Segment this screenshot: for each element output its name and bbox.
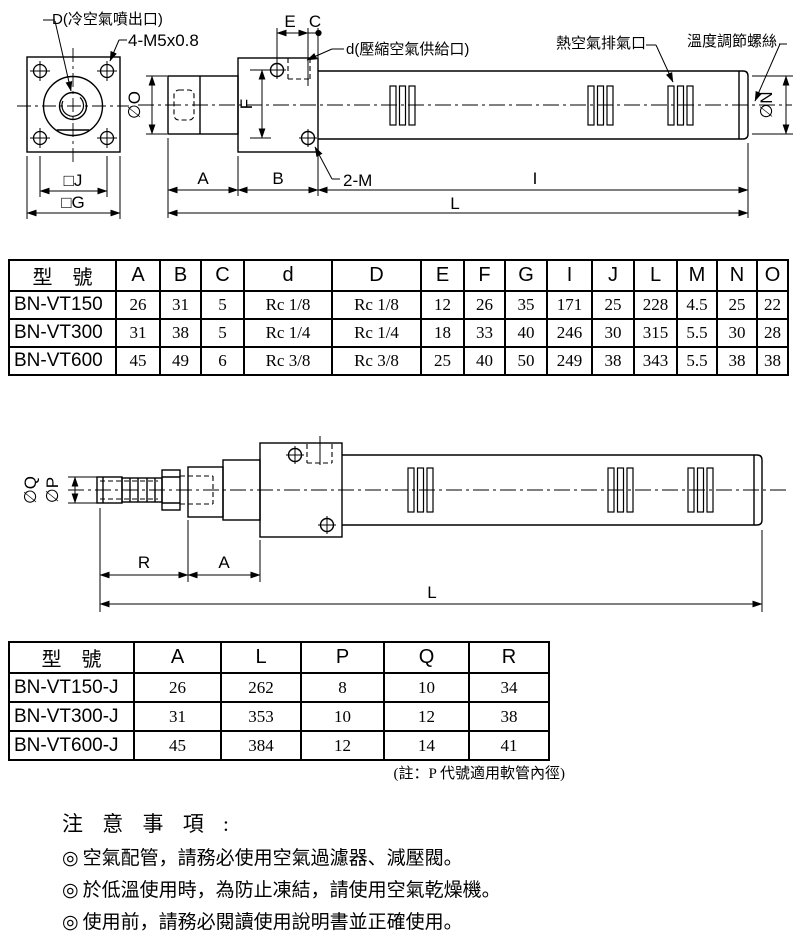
temp-screw-label: 溫度調節螺絲 (687, 32, 777, 50)
col-a: A (134, 642, 221, 673)
table-cell: 31 (134, 702, 221, 731)
table-cell: Rc 1/8 (244, 291, 332, 319)
table-cell: 8 (301, 673, 384, 702)
thread-2m-label: 2-M (343, 171, 372, 190)
dim-a-label: A (197, 169, 209, 188)
table-cell: 246 (547, 319, 592, 347)
table-row: BN-VT300 31 38 5 Rc 1/4 Rc 1/4 18 33 40 … (9, 319, 788, 347)
col-model: 型 號 (9, 642, 134, 673)
note-item: ◎使用前，請務必閱讀使用說明書並正確使用。 (62, 907, 762, 934)
table-cell: 18 (421, 319, 464, 347)
table-cell: Rc 1/8 (332, 291, 421, 319)
table-cell: 38 (160, 319, 201, 347)
table-cell: 262 (221, 673, 301, 702)
model-cell: BN-VT300-J (9, 702, 134, 731)
table-row: BN-VT600 45 49 6 Rc 3/8 Rc 3/8 25 40 50 … (9, 347, 788, 375)
table-cell: 38 (469, 702, 549, 731)
dim-e-label: E (284, 12, 295, 31)
table-cell: 5.5 (677, 347, 717, 375)
cold-air-outlet-label: D(冷空氣噴出口) (52, 11, 163, 28)
col-a: A (116, 260, 160, 291)
note-text: 於低溫使用時，為防止凍結，請使用空氣乾燥機。 (83, 880, 501, 901)
table-cell: 5.5 (677, 319, 717, 347)
dim-c-label: C (309, 12, 321, 31)
drawing-flanged-vortex-tube: D(冷空氣噴出口) 4-M5x0.8 E C d(壓縮空氣供給口) 熱空氣排氣口… (0, 0, 800, 252)
table-cell: 28 (757, 319, 788, 347)
table-cell: 30 (592, 319, 634, 347)
col-b: B (160, 260, 201, 291)
table-row: BN-VT150-J 26 262 8 10 34 (9, 673, 549, 702)
col-e: E (421, 260, 464, 291)
table-cell: 25 (592, 291, 634, 319)
bullet-icon: ◎ (62, 912, 79, 933)
bullet-icon: ◎ (62, 880, 79, 901)
table-cell: 5 (201, 319, 244, 347)
drawing-hose-barb-version: ∅Q ∅P R A L (0, 420, 800, 635)
sq-j-label: □J (64, 171, 83, 190)
table-header-row: 型 號 A L P Q R (9, 642, 549, 673)
table-cell: 50 (505, 347, 547, 375)
table-cell: 12 (384, 702, 469, 731)
note-text: 使用前，請務必閱讀使用說明書並正確使用。 (83, 912, 463, 933)
table-cell: 45 (116, 347, 160, 375)
table-cell: 353 (221, 702, 301, 731)
flange-centerlines (17, 48, 129, 162)
table-cell: 41 (469, 731, 549, 760)
sq-g-label: □G (61, 193, 85, 212)
dim-a-label: A (218, 553, 230, 572)
table-cell: 35 (505, 291, 547, 319)
body-blocks (188, 436, 342, 537)
table-cell: 22 (757, 291, 788, 319)
table-flanged: 型 號 A B C d D E F G I J L M N O BN-VT150… (8, 259, 789, 376)
col-l: L (221, 642, 301, 673)
table-cell: Rc 3/8 (332, 347, 421, 375)
dia-p-label: ∅P (43, 477, 62, 503)
col-p: P (301, 642, 384, 673)
table-cell: 49 (160, 347, 201, 375)
col-r: R (469, 642, 549, 673)
dimension-table-flanged: 型 號 A B C d D E F G I J L M N O BN-VT150… (8, 259, 789, 376)
dia-n-label: ∅N (757, 91, 776, 118)
air-supply-label: d(壓縮空氣供給口) (346, 41, 469, 58)
flange-front-view (17, 48, 129, 162)
dia-o-label: ∅O (125, 91, 144, 119)
col-d-cap: D (332, 260, 421, 291)
col-c: C (201, 260, 244, 291)
table-cell: 6 (201, 347, 244, 375)
dimension-table-barb: 型 號 A L P Q R BN-VT150-J 26 262 8 10 34 … (8, 641, 550, 761)
table-cell: 12 (301, 731, 384, 760)
mount-holes (268, 61, 317, 147)
col-q: Q (384, 642, 469, 673)
table-cell: 34 (469, 673, 549, 702)
table-cell: 40 (505, 319, 547, 347)
supply-port-hidden (288, 58, 310, 79)
dimension-lines (68, 477, 762, 612)
col-g: G (505, 260, 547, 291)
dim-f-label: F (237, 99, 256, 109)
table-cell: 315 (634, 319, 677, 347)
table-cell: 38 (717, 347, 757, 375)
col-i: I (547, 260, 592, 291)
col-f: F (464, 260, 505, 291)
model-cell: BN-VT600 (9, 347, 116, 375)
hot-tube (68, 455, 790, 525)
table-row: BN-VT600-J 45 384 12 14 41 (9, 731, 549, 760)
table-cell: 30 (717, 319, 757, 347)
table-cell: 5 (201, 291, 244, 319)
model-cell: BN-VT150-J (9, 673, 134, 702)
hot-air-exhaust-label: 熱空氣排氣口 (556, 35, 646, 52)
table-cell: 25 (421, 347, 464, 375)
dim-r-label: R (138, 553, 150, 572)
model-cell: BN-VT600-J (9, 731, 134, 760)
table-cell: 12 (421, 291, 464, 319)
col-m: M (677, 260, 717, 291)
table-barb: 型 號 A L P Q R BN-VT150-J 26 262 8 10 34 … (8, 641, 550, 761)
note-item: ◎於低溫使用時，為防止凍結，請使用空氣乾燥機。 (62, 875, 762, 902)
table-cell: 31 (116, 319, 160, 347)
notes-title: 注 意 事 項 : (62, 808, 762, 838)
dim-l-label: L (450, 194, 459, 213)
bullet-icon: ◎ (62, 848, 79, 869)
table-cell: 25 (717, 291, 757, 319)
table-cell: 249 (547, 347, 592, 375)
table-header-row: 型 號 A B C d D E F G I J L M N O (9, 260, 788, 291)
table-cell: 14 (384, 731, 469, 760)
note-text: 空氣配管，請務必使用空氣過濾器、減壓閥。 (83, 848, 463, 869)
col-j: J (592, 260, 634, 291)
note-item: ◎空氣配管，請務必使用空氣過濾器、減壓閥。 (62, 843, 762, 870)
model-cell: BN-VT150 (9, 291, 116, 319)
datasheet-page: { "drawing1": { "labels": { "cold_air_ou… (0, 0, 800, 920)
dim-l-label: L (427, 583, 436, 602)
table-cell: 33 (464, 319, 505, 347)
table-cell: 343 (634, 347, 677, 375)
bolt-spec-label: 4-M5x0.8 (128, 31, 199, 50)
col-l: L (634, 260, 677, 291)
table-cell: 26 (116, 291, 160, 319)
col-d-small: d (244, 260, 332, 291)
table-cell: 38 (757, 347, 788, 375)
table-row: BN-VT300-J 31 353 10 12 38 (9, 702, 549, 731)
table-cell: 38 (592, 347, 634, 375)
table-cell: 4.5 (677, 291, 717, 319)
table-cell: 31 (160, 291, 201, 319)
table-cell: 45 (134, 731, 221, 760)
model-cell: BN-VT300 (9, 319, 116, 347)
exhaust-slots (390, 86, 693, 125)
dia-q-label: ∅Q (21, 476, 40, 504)
table2-footnote: (註：P 代號適用軟管內徑) (0, 762, 565, 783)
table-cell: 10 (384, 673, 469, 702)
table-cell: 10 (301, 702, 384, 731)
table-cell: 228 (634, 291, 677, 319)
table-cell: 384 (221, 731, 301, 760)
table-cell: 26 (464, 291, 505, 319)
table-cell: Rc 1/4 (244, 319, 332, 347)
dim-i-label: I (533, 169, 538, 188)
table-cell: 40 (464, 347, 505, 375)
notes-section: 注 意 事 項 : ◎空氣配管，請務必使用空氣過濾器、減壓閥。 ◎於低溫使用時，… (62, 808, 762, 934)
table-cell: Rc 1/4 (332, 319, 421, 347)
table-cell: 26 (134, 673, 221, 702)
table-row: BN-VT150 26 31 5 Rc 1/8 Rc 1/8 12 26 35 … (9, 291, 788, 319)
col-model: 型 號 (9, 260, 116, 291)
table-cell: Rc 3/8 (244, 347, 332, 375)
table-cell: 171 (547, 291, 592, 319)
dim-b-label: B (272, 169, 283, 188)
col-n: N (717, 260, 757, 291)
col-o: O (757, 260, 788, 291)
